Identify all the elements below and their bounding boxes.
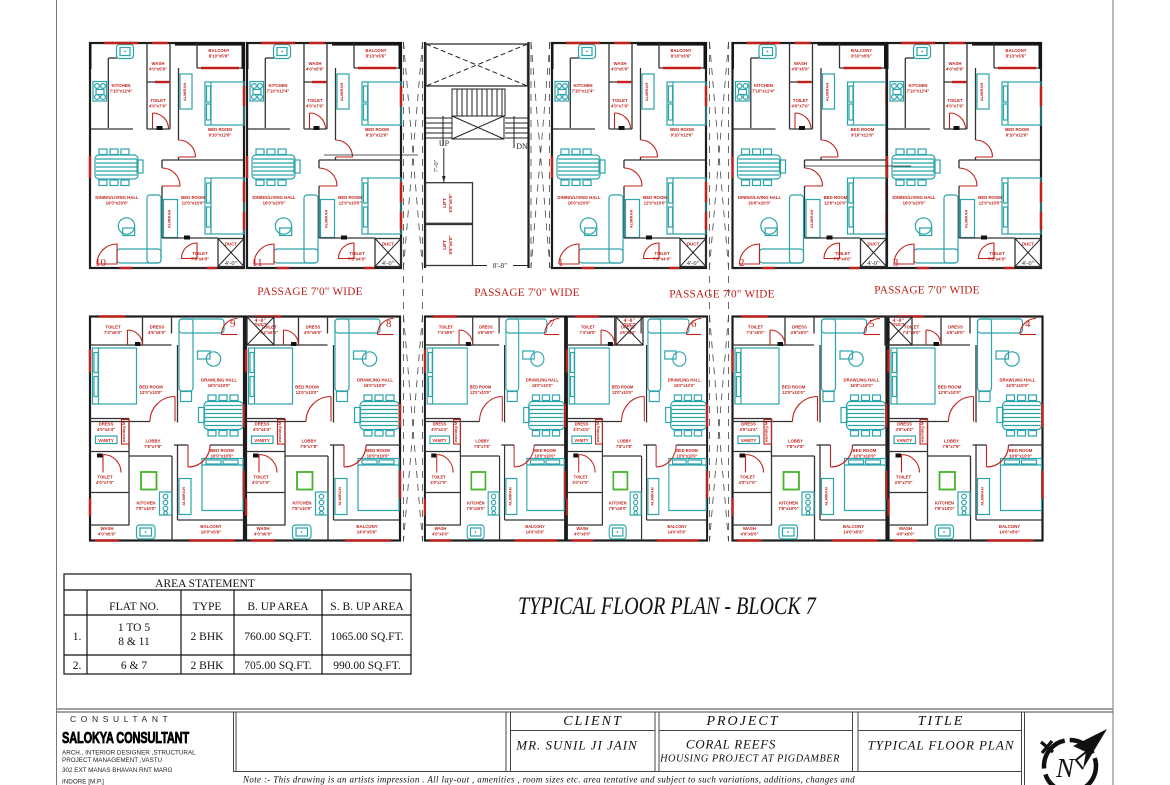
svg-text:PROJECT MANAGEMENT ,VASTU: PROJECT MANAGEMENT ,VASTU [62,757,163,764]
svg-text:2 BHK: 2 BHK [191,660,225,672]
svg-text:Note :- This drawing is an art: Note :- This drawing is an artists impre… [242,775,855,785]
svg-text:8: 8 [386,318,392,330]
svg-text:7: 7 [549,318,555,330]
svg-text:CONSULTANT: CONSULTANT [70,714,172,724]
svg-text:2 BHK: 2 BHK [191,631,225,643]
svg-text:6: 6 [691,318,697,330]
svg-text:PASSAGE 7'0" WIDE: PASSAGE 7'0" WIDE [257,286,362,298]
svg-text:9: 9 [230,318,236,330]
svg-text:5: 5 [869,318,875,330]
svg-text:TITLE: TITLE [918,714,965,729]
svg-text:8 & 11: 8 & 11 [118,636,150,648]
svg-text:PASSAGE 7'0" WIDE: PASSAGE 7'0" WIDE [474,287,579,299]
svg-text:CORAL REEFS: CORAL REEFS [686,737,776,752]
svg-text:N: N [1055,753,1076,783]
svg-text:MR. SUNIL JI JAIN: MR. SUNIL JI JAIN [515,738,638,753]
svg-text:2.: 2. [73,660,82,672]
svg-text:TYPICAL FLOOR PLAN: TYPICAL FLOOR PLAN [868,738,1015,753]
svg-text:6 & 7: 6 & 7 [121,660,147,672]
svg-text:1: 1 [558,257,564,269]
svg-text:HOUSING PROJECT AT PIGDAMBER: HOUSING PROJECT AT PIGDAMBER [659,754,840,765]
svg-text:1065.00 SQ.FT.: 1065.00 SQ.FT. [330,631,403,643]
svg-text:1 TO 5: 1 TO 5 [118,622,150,634]
svg-text:302 EXT MANAS BHAVAN RNT MARG: 302 EXT MANAS BHAVAN RNT MARG [62,767,173,774]
svg-text:1.: 1. [73,631,82,643]
svg-text:760.00 SQ.FT.: 760.00 SQ.FT. [244,631,312,643]
svg-text:PASSAGE 7'0" WIDE: PASSAGE 7'0" WIDE [669,289,774,301]
svg-text:PROJECT: PROJECT [705,714,779,729]
svg-text:TYPICAL FLOOR PLAN - BLOCK 7: TYPICAL FLOOR PLAN - BLOCK 7 [518,592,817,620]
svg-text:FLAT NO.: FLAT NO. [109,601,159,613]
svg-text:3: 3 [893,257,899,269]
svg-text:705.00 SQ.FT.: 705.00 SQ.FT. [244,660,312,672]
svg-text:B. UP AREA: B. UP AREA [247,601,309,613]
svg-text:2: 2 [739,257,745,269]
svg-text:TYPE: TYPE [193,601,222,613]
svg-text:S. B. UP AREA: S. B. UP AREA [330,601,404,613]
svg-text:10: 10 [95,257,107,269]
svg-text:11: 11 [252,257,263,269]
svg-text:ARCH., INTERIOR DESIGNER ,STRU: ARCH., INTERIOR DESIGNER ,STRUCTURAL [62,750,196,757]
svg-text:PASSAGE 7'0" WIDE: PASSAGE 7'0" WIDE [874,285,979,297]
svg-text:4'-0": 4'-0" [255,318,267,324]
svg-text:SALOKYA CONSULTANT: SALOKYA CONSULTANT [62,729,190,746]
svg-text:CLIENT: CLIENT [563,714,622,729]
svg-text:4: 4 [1025,318,1031,330]
svg-text:INDORE [M.P.]: INDORE [M.P.] [62,779,104,785]
svg-text:AREA STATEMENT: AREA STATEMENT [155,578,255,590]
svg-text:990.00 SQ.FT.: 990.00 SQ.FT. [333,660,401,672]
